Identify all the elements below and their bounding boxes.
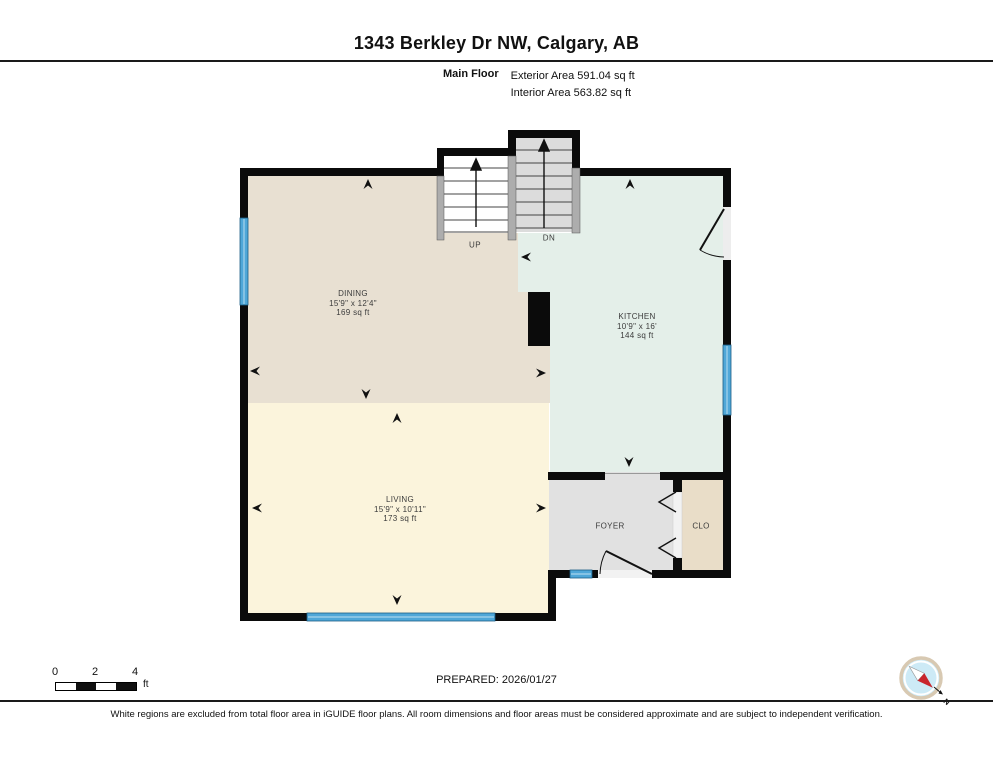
room-name: FOYER [595, 521, 624, 531]
interior-wall-stub [528, 292, 550, 346]
room-area: 144 sq ft [617, 331, 657, 341]
room-label-dining: DINING 15'9" x 12'4" 169 sq ft [329, 289, 377, 318]
prepared-date: PREPARED: 2026/01/27 [0, 674, 993, 686]
room-dimensions: 10'9" x 16' [617, 321, 657, 331]
room-dimensions: 15'9" x 10'11" [374, 504, 426, 514]
room-name: KITCHEN [617, 312, 657, 322]
room-name: DINING [329, 289, 377, 299]
room-name: CLO [692, 521, 709, 531]
room-area: 173 sq ft [374, 514, 426, 524]
room-dimensions: 15'9" x 12'4" [329, 298, 377, 308]
front-door-opening [598, 570, 652, 578]
stairs-up-label: UP [469, 241, 481, 250]
room-name: LIVING [374, 495, 426, 505]
room-label-closet: CLO [692, 521, 709, 531]
room-fills [248, 138, 731, 613]
room-area: 169 sq ft [329, 308, 377, 318]
stairs-down-label: DN [543, 234, 556, 243]
room-label-living: LIVING 15'9" x 10'11" 173 sq ft [374, 495, 426, 524]
room-label-foyer: FOYER [595, 521, 624, 531]
disclaimer-text: White regions are excluded from total fl… [0, 709, 993, 720]
closet-door-opening [673, 492, 682, 558]
room-label-kitchen: KITCHEN 10'9" x 16' 144 sq ft [617, 312, 657, 341]
footer-divider [0, 700, 993, 702]
floor-plan-drawing: N [0, 0, 993, 768]
floor-plan-page: 1343 Berkley Dr NW, Calgary, AB Main Flo… [0, 0, 993, 768]
back-door-opening [723, 207, 731, 260]
